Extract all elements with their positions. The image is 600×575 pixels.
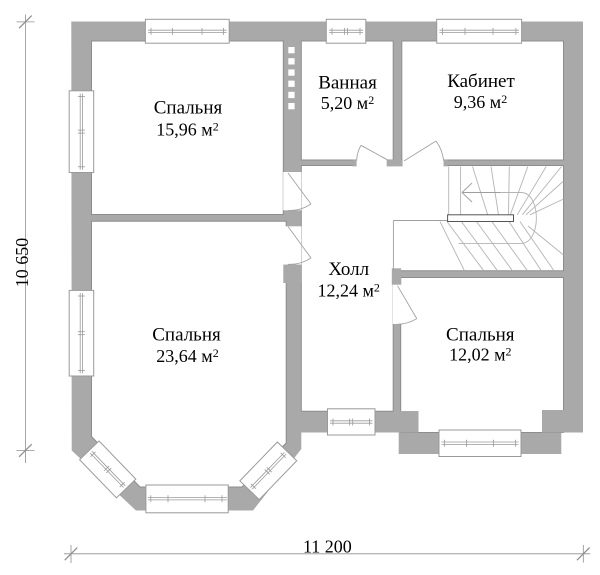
svg-text:12,02 м2: 12,02 м2 <box>449 345 511 365</box>
svg-text:9,36 м2: 9,36 м2 <box>454 92 507 112</box>
svg-text:Холл: Холл <box>328 259 369 280</box>
svg-text:23,64 м2: 23,64 м2 <box>156 346 218 366</box>
svg-text:Кабинет: Кабинет <box>447 71 515 92</box>
svg-text:Спальня: Спальня <box>446 325 515 346</box>
svg-text:12,24 м2: 12,24 м2 <box>318 281 380 301</box>
svg-text:Спальня: Спальня <box>154 98 223 119</box>
svg-text:Ванная: Ванная <box>318 72 377 93</box>
svg-text:Спальня: Спальня <box>152 325 221 346</box>
svg-text:15,96 м2: 15,96 м2 <box>156 120 218 140</box>
svg-text:5,20 м2: 5,20 м2 <box>321 93 374 113</box>
svg-text:11 200: 11 200 <box>303 537 352 557</box>
svg-text:10 650: 10 650 <box>12 238 32 288</box>
